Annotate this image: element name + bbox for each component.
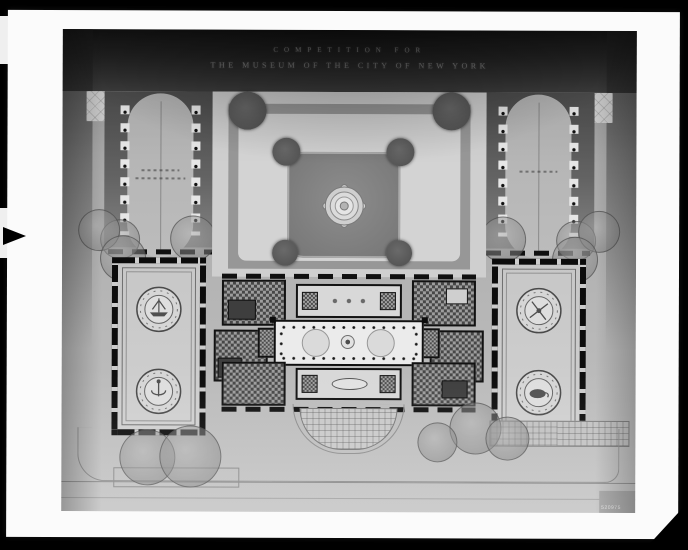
tree (386, 240, 412, 266)
tree (386, 138, 414, 166)
gallery-room (412, 362, 476, 406)
illegible-annotation (519, 171, 557, 173)
museum-floor-plan (212, 272, 486, 413)
pier-row (569, 107, 578, 237)
column-row (414, 330, 419, 356)
left-wall (62, 29, 93, 349)
gallery-room (222, 362, 286, 406)
lawn-axis-line (538, 103, 540, 251)
wall-gap-strip (199, 264, 206, 430)
tree (272, 138, 300, 166)
photo-paper: COMPETITION FOR THE MUSEUM OF THE CITY O… (6, 10, 680, 539)
east-vestibule (422, 328, 440, 358)
gallery-room-dark (228, 300, 256, 320)
pilaster (270, 317, 276, 323)
title-band: COMPETITION FOR THE MUSEUM OF THE CITY O… (63, 29, 637, 93)
tree (170, 215, 216, 261)
tree (485, 416, 529, 460)
south-corridor (296, 368, 402, 400)
medallion-windmill-icon (515, 287, 563, 335)
right-wall (606, 31, 637, 351)
central-court (212, 92, 487, 278)
column-row (280, 356, 417, 361)
column-row (280, 325, 417, 330)
corridor-bay (302, 375, 318, 393)
tree (159, 425, 221, 487)
fountain-icon (322, 184, 366, 228)
site-plan-rendering: COMPETITION FOR THE MUSEUM OF THE CITY O… (61, 29, 637, 513)
tree (417, 422, 457, 462)
hall-circle (302, 329, 330, 357)
entry-oval (332, 378, 368, 390)
catalog-number-text: 520975 (601, 505, 621, 511)
tree (272, 240, 298, 266)
hall-circle (367, 329, 395, 357)
archival-photograph: COMPETITION FOR THE MUSEUM OF THE CITY O… (0, 0, 688, 550)
north-corridor (296, 284, 402, 318)
gallery-room-light (446, 288, 468, 304)
corridor-bay (380, 292, 396, 310)
walled-court-right (491, 259, 586, 437)
medallion-eagle-icon (135, 367, 183, 415)
floor-rosettes (328, 296, 370, 306)
tree (433, 92, 471, 130)
facade-wall (222, 274, 476, 280)
walled-court-left (111, 257, 206, 435)
film-notch-icon (3, 227, 26, 245)
column-row (279, 330, 284, 356)
title-line-1: COMPETITION FOR (63, 45, 637, 55)
illegible-annotation (141, 169, 179, 171)
hall-center-rosette (341, 335, 355, 349)
medallion-ship-icon (135, 285, 183, 333)
title-line-2: THE MUSEUM OF THE CITY OF NEW YORK (63, 60, 637, 71)
pilaster (422, 317, 428, 323)
road-line (61, 497, 635, 500)
catalog-label: 520975 (599, 491, 635, 513)
tree (480, 216, 526, 262)
wall-gap-strip (579, 265, 586, 431)
central-hall (274, 320, 424, 367)
corridor-bay (380, 375, 396, 393)
gallery-room-dark (442, 380, 468, 398)
tree (229, 92, 267, 130)
paper-corner-cut (644, 500, 688, 550)
pier-row (120, 105, 129, 235)
corridor-bay (302, 292, 318, 310)
lawn-axis-line (160, 101, 162, 249)
illegible-annotation (135, 177, 185, 179)
medallion-beaver-icon (515, 369, 563, 417)
